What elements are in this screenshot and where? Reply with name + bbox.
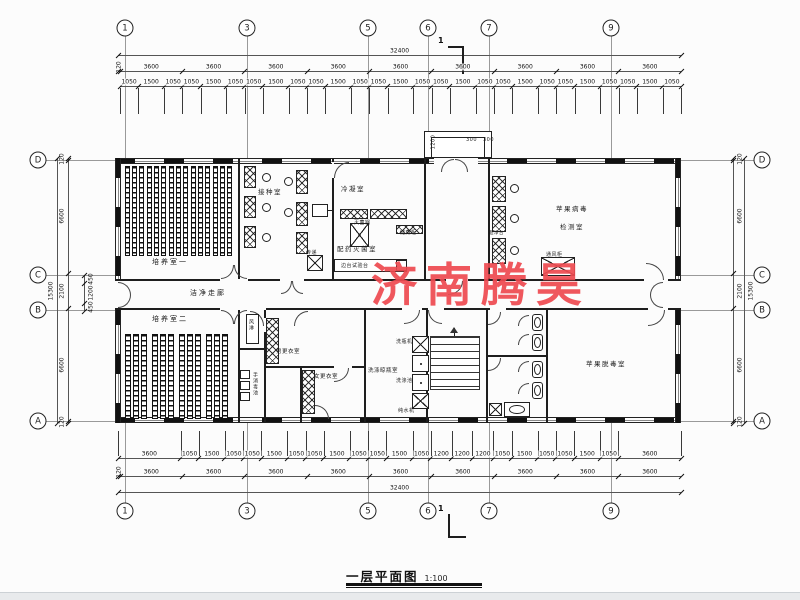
dimension-label: 3600 xyxy=(454,469,471,476)
stall-door xyxy=(518,361,529,372)
dimension-label: 1050 xyxy=(306,451,323,458)
extension-line xyxy=(386,431,387,456)
grid-bubble-left: C xyxy=(30,267,47,284)
culture1-rack xyxy=(125,166,130,256)
extension-line xyxy=(245,88,246,114)
door-leaf xyxy=(118,295,131,308)
watermark-text: 济南腾昊 xyxy=(371,259,591,312)
door-leaf xyxy=(221,265,234,279)
dimension-label: 3600 xyxy=(205,64,222,71)
dimension-label: 1050 xyxy=(494,451,511,458)
dimension-label: 1200 xyxy=(88,284,95,301)
dimension-line xyxy=(84,275,85,311)
locker-men xyxy=(266,318,279,364)
dimension-line xyxy=(120,86,681,87)
dimension-label: 3600 xyxy=(517,469,534,476)
culture2-rack xyxy=(133,334,139,419)
dimension-line xyxy=(118,492,681,493)
equip-label-water-machine: 纯水机 xyxy=(398,407,415,414)
grid-line xyxy=(247,423,248,503)
dimension-label: 3600 xyxy=(143,64,160,71)
room-label-women-change: 女更衣室 xyxy=(314,372,338,380)
culture2-rack xyxy=(160,334,166,419)
partition xyxy=(238,310,240,423)
grid-bubble-bottom: 5 xyxy=(360,503,377,520)
equip-label-sterilizer: 灭菌锅 xyxy=(354,219,371,226)
stool xyxy=(510,214,519,223)
dimension-label: 1500 xyxy=(516,451,533,458)
dimension-label: 1500 xyxy=(579,451,596,458)
extension-line xyxy=(574,431,575,456)
title-underline xyxy=(346,587,482,588)
door-leaf xyxy=(281,281,292,294)
extension-line xyxy=(120,88,121,114)
culture1-rack xyxy=(227,166,232,256)
dimension-label: 3600 xyxy=(141,451,158,458)
dimension-line xyxy=(118,458,681,459)
wash-sink-box xyxy=(412,355,429,372)
equip-label-fume-hood: 通风柜 xyxy=(546,251,563,258)
extension-line xyxy=(138,88,139,114)
dimension-label: 1050 xyxy=(414,79,431,86)
grid-line xyxy=(489,423,490,503)
culture2-rack xyxy=(195,334,201,419)
dimension-label: 15300 xyxy=(48,280,55,301)
grid-bubble-top: 6 xyxy=(420,20,437,37)
sink-box xyxy=(489,403,502,416)
dimension-label: 3600 xyxy=(143,469,160,476)
room-label-hand-wash: 手消毒池 xyxy=(252,372,259,396)
equip-label-clean-bench: 超净台 xyxy=(489,230,504,236)
dimension-label: 1050 xyxy=(288,451,305,458)
dimension-line xyxy=(733,158,734,423)
room-label-virus-test-2: 检测室 xyxy=(560,221,584,231)
dimension-label: 120 xyxy=(737,415,744,428)
culture1-rack xyxy=(205,166,210,256)
corridor-east-opening xyxy=(674,281,682,308)
dimension-label: 3600 xyxy=(454,64,471,71)
stool xyxy=(262,173,271,182)
dimension-label: 1050 xyxy=(557,79,574,86)
dimension-label: 1050 xyxy=(181,451,198,458)
dimension-label: 1500 xyxy=(517,79,534,86)
door-leaf xyxy=(294,311,308,326)
extension-line xyxy=(432,88,433,114)
dimension-label: 3600 xyxy=(392,469,409,476)
section-mark-bottom-line xyxy=(448,536,466,538)
culture1-rack xyxy=(220,166,225,256)
room-label-air-shower: 风淋 xyxy=(248,319,255,331)
dimension-label: 1050 xyxy=(369,451,386,458)
room-label-corridor: 洁净走廊 xyxy=(190,288,226,298)
window-bottom-bar xyxy=(0,592,800,600)
dimension-label: 120 xyxy=(59,415,66,428)
door-leaf xyxy=(648,310,665,326)
dimension-label: 6600 xyxy=(737,356,744,373)
partition xyxy=(238,158,240,281)
dimension-label: 1050 xyxy=(538,451,555,458)
section-mark-bottom-label: 1 xyxy=(438,504,444,513)
dimension-label: 1050 xyxy=(494,79,511,86)
title-underline xyxy=(346,583,482,586)
dimension-label: 1500 xyxy=(203,451,220,458)
toilet xyxy=(532,334,543,351)
dimension-line xyxy=(118,55,681,56)
extension-line xyxy=(164,88,165,114)
dimension-label: 1050 xyxy=(244,451,261,458)
dimension-label: 1500 xyxy=(266,451,283,458)
room-label-culture2: 培养室二 xyxy=(152,314,188,324)
dimension-label: 1050 xyxy=(601,79,618,86)
extension-line xyxy=(619,88,620,114)
dimension-label: 1050 xyxy=(350,451,367,458)
pass-window-hatch xyxy=(307,255,323,271)
equip-label-wash-sink: 洗涤池 xyxy=(396,377,413,384)
dimension-label: 32400 xyxy=(389,48,410,55)
extension-line xyxy=(600,88,601,114)
dimension-label: 3600 xyxy=(641,469,658,476)
extension-line xyxy=(226,88,227,114)
inoculation-bench xyxy=(244,166,256,188)
stall-door xyxy=(518,315,529,326)
dimension-label: 1500 xyxy=(391,451,408,458)
dimension-label: 1050 xyxy=(556,451,573,458)
culture1-rack xyxy=(161,166,166,256)
dimension-label: 1500 xyxy=(267,79,284,86)
extension-line xyxy=(556,88,557,114)
section-mark-bottom-line xyxy=(448,514,450,538)
room-label-men-change: 男更衣室 xyxy=(276,347,300,355)
partition xyxy=(486,355,548,357)
dimension-label: 120 xyxy=(737,152,744,165)
extension-line xyxy=(261,431,262,456)
door-leaf xyxy=(650,282,663,295)
extension-line xyxy=(201,88,202,114)
room-label-condensation: 冷凝室 xyxy=(341,183,365,193)
dimension-tick xyxy=(678,69,684,75)
toilet xyxy=(532,361,543,378)
dimension-line xyxy=(118,476,681,477)
dim-entrance-depth: 1200 xyxy=(430,135,436,150)
prep-bench xyxy=(370,209,407,219)
equip-label-pass-window: 传递 xyxy=(306,249,317,256)
grid-bubble-bottom: 1 xyxy=(117,503,134,520)
dimension-label: 3600 xyxy=(267,469,284,476)
culture2-rack xyxy=(206,334,212,419)
extension-line xyxy=(575,88,576,114)
dimension-label: 3600 xyxy=(641,451,658,458)
dimension-label: 1200 xyxy=(453,451,470,458)
extension-line xyxy=(307,88,308,114)
grid-bubble-bottom: 9 xyxy=(603,503,620,520)
grid-bubble-top: 3 xyxy=(239,20,256,37)
dimension-label: 2100 xyxy=(737,282,744,299)
dimension-line xyxy=(68,158,69,423)
room-label-culture1: 培养室一 xyxy=(152,257,188,267)
dim-entrance-b: 300 xyxy=(483,137,494,143)
culture2-rack xyxy=(168,334,174,419)
grid-bubble-left: B xyxy=(30,302,47,319)
extension-line xyxy=(289,88,290,114)
dimension-label: 1050 xyxy=(539,79,556,86)
door-leaf xyxy=(646,263,664,280)
extension-line xyxy=(324,431,325,456)
partition xyxy=(240,348,266,350)
extension-line xyxy=(450,88,451,114)
inoculation-bench xyxy=(296,170,308,194)
dimension-label: 1050 xyxy=(413,451,430,458)
stool xyxy=(284,208,293,217)
grid-bubble-left: A xyxy=(30,413,47,430)
extension-line xyxy=(538,88,539,114)
extension-line xyxy=(199,431,200,456)
dimension-label: 1500 xyxy=(143,79,160,86)
culture1-rack xyxy=(183,166,188,256)
extension-line xyxy=(325,88,326,114)
grid-bubble-top: 9 xyxy=(603,20,620,37)
grid-bubble-bottom: 3 xyxy=(239,503,256,520)
extension-line xyxy=(663,88,664,114)
culture1-rack xyxy=(198,166,203,256)
door-leaf xyxy=(334,162,349,178)
culture1-rack xyxy=(154,166,159,256)
dimension-label: 3600 xyxy=(205,469,222,476)
culture1-rack xyxy=(139,166,144,256)
stair-arrow-head xyxy=(450,323,458,333)
dimension-label: 1500 xyxy=(330,79,347,86)
dimension-label: 3600 xyxy=(517,64,534,71)
room-label-virus-test-1: 苹果病毒 xyxy=(556,203,588,213)
culture2-rack xyxy=(179,334,185,419)
dimension-label: 1050 xyxy=(352,79,369,86)
culture2-rack xyxy=(187,334,193,419)
dimension-label: 1050 xyxy=(183,79,200,86)
culture2-rack xyxy=(222,334,228,419)
dimension-label: 3600 xyxy=(641,64,658,71)
dimension-label: 1050 xyxy=(165,79,182,86)
dimension-label: 1050 xyxy=(120,79,137,86)
room-label-washing: 洗涤晾瓶室 xyxy=(368,366,398,374)
stool xyxy=(262,233,271,242)
dimension-tick xyxy=(678,456,684,462)
stool xyxy=(510,246,519,255)
dimension-label: 6600 xyxy=(737,208,744,225)
bottle-washer-box xyxy=(412,336,429,353)
dimension-label: 120 xyxy=(116,60,123,73)
dimension-label: 1050 xyxy=(476,79,493,86)
culture1-rack xyxy=(213,166,218,256)
staircase xyxy=(430,336,480,390)
extension-line xyxy=(388,88,389,114)
dimension-label: 3600 xyxy=(579,64,596,71)
door-leaf xyxy=(292,281,303,294)
dimension-label: 6600 xyxy=(59,356,66,373)
pass-window-box xyxy=(312,204,328,217)
door-leaf xyxy=(315,405,329,419)
dimension-label: 1050 xyxy=(225,451,242,458)
stool xyxy=(262,203,271,212)
extension-line xyxy=(351,88,352,114)
extension-line xyxy=(512,431,513,456)
hand-wash-box xyxy=(240,381,250,390)
toilet xyxy=(532,382,543,399)
culture2-rack xyxy=(141,334,147,419)
grid-bubble-bottom: 6 xyxy=(420,503,437,520)
equip-label-storage: 储藏柜 xyxy=(400,229,417,236)
grid-bubble-top: 5 xyxy=(360,20,377,37)
dimension-label: 1050 xyxy=(432,79,449,86)
extension-line xyxy=(182,88,183,114)
clean-bench xyxy=(492,206,506,232)
dimension-label: 1050 xyxy=(370,79,387,86)
dimension-label: 120 xyxy=(116,465,123,478)
hand-wash-box xyxy=(240,370,250,379)
stall-door xyxy=(518,383,529,394)
culture1-rack xyxy=(147,166,152,256)
extension-line xyxy=(369,88,370,114)
exterior-wall-top xyxy=(115,158,681,164)
grid-line xyxy=(125,423,126,503)
dimension-label: 3600 xyxy=(330,469,347,476)
dimension-label: 450 xyxy=(88,300,95,313)
dimension-label: 120 xyxy=(59,152,66,165)
dimension-label: 1500 xyxy=(392,79,409,86)
dimension-label: 1050 xyxy=(289,79,306,86)
grid-line xyxy=(428,423,429,503)
extension-line xyxy=(512,88,513,114)
door-leaf xyxy=(234,265,247,279)
room-label-prep-steril: 配药灭菌室 xyxy=(337,243,377,253)
culture1-rack xyxy=(132,166,137,256)
stool xyxy=(284,177,293,186)
extension-line xyxy=(618,431,619,456)
dimension-label: 3600 xyxy=(330,64,347,71)
dimension-line xyxy=(744,158,745,423)
culture1-rack xyxy=(169,166,174,256)
dimension-label: 6600 xyxy=(59,208,66,225)
inoculation-bench xyxy=(244,226,256,248)
room-label-detox: 苹果脱毒室 xyxy=(586,358,626,368)
grid-line xyxy=(611,423,612,503)
door-leaf xyxy=(404,310,420,324)
dimension-label: 1500 xyxy=(328,451,345,458)
door-leaf xyxy=(118,282,131,295)
door-leaf xyxy=(221,310,234,324)
dimension-label: 1050 xyxy=(619,79,636,86)
door-leaf xyxy=(428,310,442,324)
hand-wash-box xyxy=(240,392,250,401)
wash-sink-box xyxy=(412,374,429,391)
wash-basin xyxy=(504,402,530,417)
dimension-label: 1500 xyxy=(641,79,658,86)
grid-bubble-right: A xyxy=(754,413,771,430)
door-leaf xyxy=(488,358,501,371)
water-machine-box xyxy=(412,393,429,409)
room-label-inoculation: 接种室 xyxy=(258,186,282,196)
dimension-tick xyxy=(678,490,684,496)
inoculation-bench xyxy=(296,202,308,226)
inoculation-bench xyxy=(244,196,256,218)
extension-line xyxy=(413,88,414,114)
door-leaf xyxy=(488,312,501,325)
grid-bubble-left: D xyxy=(30,152,47,169)
extension-line xyxy=(494,88,495,114)
dimension-label: 32400 xyxy=(389,485,410,492)
grid-bubble-right: B xyxy=(754,302,771,319)
dimension-label: 3600 xyxy=(579,469,596,476)
dimension-label: 1500 xyxy=(579,79,596,86)
culture2-rack xyxy=(125,334,131,419)
culture2-rack xyxy=(152,334,158,419)
extension-line xyxy=(681,88,682,114)
dimension-label: 1200 xyxy=(433,451,450,458)
prep-bench xyxy=(340,209,368,219)
culture1-rack xyxy=(191,166,196,256)
connector-line xyxy=(328,210,334,211)
culture1-rack xyxy=(176,166,181,256)
extension-line xyxy=(681,431,682,456)
dimension-label: 1050 xyxy=(601,451,618,458)
clean-bench xyxy=(492,176,506,202)
drawing-title-text: 一层平面图 xyxy=(346,569,419,584)
grid-bubble-right: C xyxy=(754,267,771,284)
dim-entrance-a: 300 xyxy=(466,137,477,143)
grid-bubble-bottom: 7 xyxy=(481,503,498,520)
dimension-label: 1050 xyxy=(663,79,680,86)
dimension-label: 1200 xyxy=(474,451,491,458)
dimension-label: 1050 xyxy=(307,79,324,86)
floor-plan-canvas: 培养室一 接种室 冷凝室 配药灭菌室 苹果病毒 检测室 洁净走廊 培养室二 男更… xyxy=(0,0,800,600)
extension-line xyxy=(263,88,264,114)
dimension-label: 3600 xyxy=(267,64,284,71)
partition xyxy=(546,310,548,423)
dimension-tick xyxy=(678,53,684,59)
grid-bubble-top: 1 xyxy=(117,20,134,37)
stall-door xyxy=(518,334,529,345)
dimension-label: 1050 xyxy=(245,79,262,86)
dimension-label: 15300 xyxy=(748,280,755,301)
equip-label-bottle-washer: 洗瓶机 xyxy=(396,338,413,345)
culture2-rack xyxy=(214,334,220,419)
extension-line xyxy=(637,88,638,114)
dimension-label: 1050 xyxy=(227,79,244,86)
drawing-scale: 1:100 xyxy=(425,574,448,583)
dimension-label: 3600 xyxy=(392,64,409,71)
dimension-label: 1500 xyxy=(454,79,471,86)
equip-label-side-bench: 边台试验台 xyxy=(341,262,369,269)
dimension-tick xyxy=(678,474,684,480)
dimension-line xyxy=(118,71,681,72)
door-opening xyxy=(220,279,248,281)
grid-bubble-top: 7 xyxy=(481,20,498,37)
grid-bubble-right: D xyxy=(754,152,771,169)
extension-line xyxy=(118,431,119,456)
door-leaf xyxy=(650,295,663,308)
dimension-label: 2100 xyxy=(59,282,66,299)
toilet xyxy=(532,314,543,331)
dimension-label: 1500 xyxy=(205,79,222,86)
stool xyxy=(510,184,519,193)
section-mark-top-label: 1 xyxy=(438,36,444,45)
extension-line xyxy=(476,88,477,114)
